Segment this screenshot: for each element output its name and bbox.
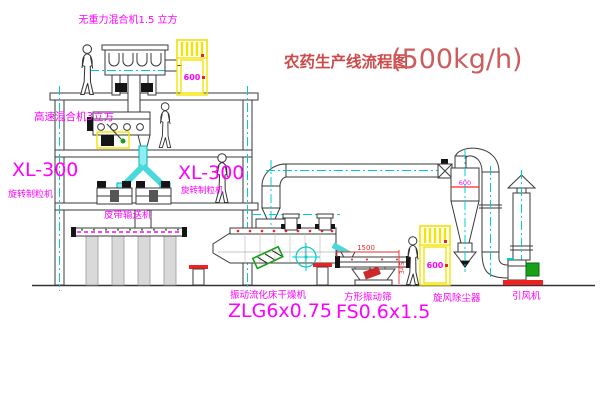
induced-draft-fan — [503, 259, 543, 285]
granulator-model-label-1: XL-300 — [12, 159, 78, 181]
granulator-name-label-2: 旋转制粒机 — [181, 185, 224, 196]
fan-motor — [526, 263, 539, 276]
sieve-width-dim-label: 1500 — [357, 244, 375, 252]
gravity-mixer-label: 无重力混合机1.5 立方 — [78, 13, 177, 26]
induced-fan-label: 引风机 — [512, 290, 541, 302]
exhaust-stub-2 — [315, 214, 335, 230]
drive-motor — [101, 135, 114, 146]
mixer-down-chute — [128, 75, 140, 112]
diagram-capacity: (500kg/h) — [391, 44, 523, 75]
elevator-2-size-label: 600 — [427, 261, 444, 270]
pesticide-flow-diagram: 600 — [0, 0, 600, 403]
person-figure — [81, 45, 94, 95]
fluid-bed-model-label: ZLG6x0.75 — [228, 300, 332, 322]
sieve-height-dim-label: 345 — [398, 262, 406, 274]
bucket-elevator-2: 600 — [420, 226, 450, 285]
belt-conveyor — [71, 227, 187, 285]
gravity-free-mixer — [90, 45, 182, 112]
person-figure — [159, 103, 170, 148]
high-speed-mixer-label: 高速混合机3立方 — [34, 110, 114, 123]
granulator-model-label-2: XL-300 — [178, 162, 244, 184]
granulator-name-label-1: 旋转制粒机 — [8, 188, 53, 200]
belt-conveyor-label: 皮带输送机 — [104, 209, 152, 221]
mixer-discharge-funnel — [138, 135, 150, 147]
duct-damper — [438, 159, 452, 178]
bucket-elevator-1: 600 — [177, 40, 207, 95]
diagram-title: 农药生产线流程图 — [283, 52, 408, 71]
diagram-canvas: 600 — [0, 0, 600, 403]
elevator-1-size-label: 600 — [184, 73, 201, 82]
fan-base — [503, 280, 543, 285]
granulator-2 — [136, 181, 171, 204]
granulator-1 — [97, 181, 132, 204]
square-sieve-model-label: FS0.6x1.5 — [336, 301, 430, 323]
cyclone-label: 旋风除尘器 — [433, 292, 481, 304]
mixer-motor — [165, 60, 177, 71]
downcomer-duct — [479, 166, 508, 278]
exhaust-duct — [252, 160, 450, 233]
